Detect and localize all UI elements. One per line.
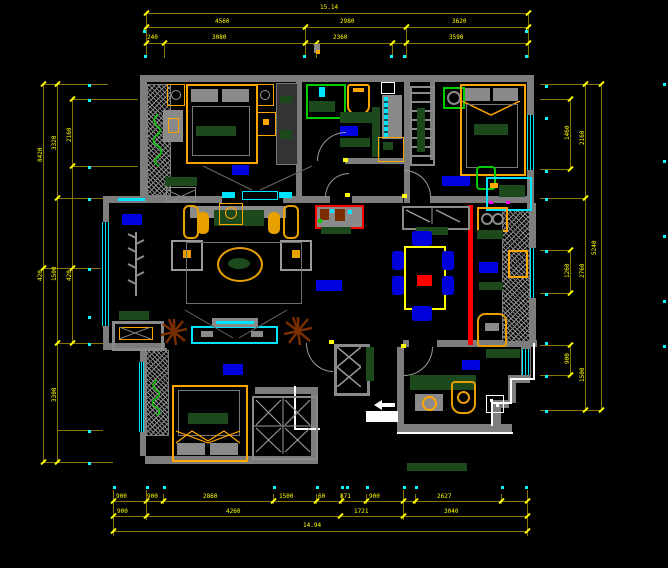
dining-chair bbox=[442, 276, 454, 295]
room-label-living bbox=[316, 280, 342, 291]
axis-dot bbox=[88, 198, 91, 201]
dim-text: 2360 bbox=[333, 35, 347, 41]
wall-top bbox=[140, 75, 533, 82]
cabinet-ornament bbox=[335, 209, 345, 221]
coat-tree-icon bbox=[124, 230, 148, 298]
dim-tick bbox=[567, 166, 573, 172]
shaft-x bbox=[337, 347, 361, 387]
wardrobe-x-panels bbox=[254, 398, 312, 454]
dim-text: 2160 bbox=[67, 128, 73, 142]
dim-text-total-bottom: 14.94 bbox=[303, 523, 321, 529]
burner bbox=[492, 213, 504, 225]
kitchen-counter-green bbox=[477, 230, 503, 239]
room-label-bedroom1 bbox=[232, 165, 249, 175]
mirror bbox=[384, 97, 388, 137]
dim-text: 420 bbox=[67, 270, 73, 281]
stool-seat bbox=[485, 323, 499, 331]
axis-dot bbox=[525, 55, 528, 58]
axis-dot bbox=[346, 486, 349, 489]
sliding-door-bedroom1 bbox=[242, 191, 278, 200]
dim-tick bbox=[598, 407, 604, 413]
dim-tick bbox=[567, 372, 573, 378]
desk-item bbox=[490, 183, 498, 188]
door-hinge bbox=[402, 194, 407, 198]
axis-dot bbox=[88, 268, 91, 271]
room-label-bath2 bbox=[462, 360, 480, 370]
dim-text: 900 bbox=[369, 494, 380, 500]
section-marker-accent bbox=[316, 50, 320, 54]
pillow bbox=[465, 88, 490, 101]
axis-dot bbox=[525, 486, 528, 489]
desk-bedroom2 bbox=[486, 177, 532, 211]
closet-boxes bbox=[417, 108, 425, 152]
bath1-shelf bbox=[340, 112, 372, 123]
axis-dot bbox=[545, 293, 548, 296]
axis-dot bbox=[88, 316, 91, 319]
plant-squiggle-icon bbox=[148, 378, 166, 416]
dresser bbox=[163, 110, 183, 142]
room-label-bedroom3 bbox=[223, 364, 243, 375]
axis-dot bbox=[163, 486, 166, 489]
dim-line bbox=[146, 13, 528, 14]
washing-machine bbox=[486, 395, 504, 413]
axis-dot bbox=[415, 486, 418, 489]
dim-ext bbox=[540, 84, 602, 85]
wardrobe-bedroom1 bbox=[276, 83, 298, 165]
washer-knob bbox=[490, 399, 493, 402]
dim-ext bbox=[72, 166, 138, 167]
door-hinge bbox=[343, 158, 348, 162]
dim-text: 3040 bbox=[444, 509, 458, 515]
dim-line bbox=[146, 43, 528, 44]
dim-text: 900 bbox=[565, 353, 571, 364]
dim-text: 60 bbox=[318, 494, 325, 500]
cabinet-ornament-cyan bbox=[348, 210, 352, 214]
dim-text: 2980 bbox=[340, 19, 354, 25]
dim-line bbox=[113, 501, 527, 502]
bath1-cabinet bbox=[378, 137, 404, 162]
dim-text: 900 bbox=[116, 494, 127, 500]
tv-cabinet-bedroom1 bbox=[165, 177, 197, 186]
nightstand bbox=[256, 84, 274, 106]
wall-bedroom3-topright bbox=[255, 387, 318, 394]
hall-shelf bbox=[321, 227, 351, 234]
cabinet-item bbox=[383, 142, 393, 150]
dim-ext bbox=[57, 430, 103, 431]
sofa-scroll-ornament bbox=[268, 212, 280, 234]
axis-dot bbox=[663, 83, 666, 86]
bed-bedroom1 bbox=[186, 84, 258, 164]
dim-ext bbox=[164, 43, 165, 58]
basin bbox=[422, 396, 437, 411]
axis-dot bbox=[144, 55, 147, 58]
desk-item-magenta bbox=[506, 201, 510, 204]
dim-text: 2760 bbox=[580, 264, 586, 278]
washer-knob bbox=[496, 404, 499, 407]
axis-dot bbox=[273, 486, 276, 489]
dim-text: 3300 bbox=[52, 388, 58, 402]
wall-bath2-bottom bbox=[397, 424, 512, 432]
axis-dot bbox=[146, 486, 149, 489]
wall-left-upper bbox=[140, 75, 147, 199]
plant-burst-icon bbox=[160, 318, 188, 346]
dim-text: 2860 bbox=[203, 494, 217, 500]
dining-chair bbox=[392, 276, 404, 295]
fan-blade bbox=[447, 91, 461, 105]
dim-line bbox=[601, 84, 602, 410]
lamp-icon bbox=[260, 90, 270, 100]
tv-sightlines-living bbox=[183, 308, 289, 340]
dim-ext bbox=[528, 13, 529, 58]
gas-stove bbox=[477, 207, 508, 232]
dim-text: 8420 bbox=[38, 148, 44, 162]
blanket-strip bbox=[196, 126, 236, 136]
pillow bbox=[191, 89, 218, 102]
blanket-strip bbox=[188, 413, 228, 424]
dim-line bbox=[113, 531, 527, 532]
tv-sightlines bbox=[200, 164, 316, 194]
axis-dot bbox=[88, 462, 91, 465]
dining-chair bbox=[442, 251, 454, 270]
dim-line bbox=[113, 516, 527, 517]
dim-text: 420 bbox=[38, 270, 44, 281]
wardrobe-item bbox=[280, 96, 292, 103]
paper-holder bbox=[381, 82, 395, 94]
entry-outline bbox=[397, 432, 513, 434]
entry-label-block bbox=[366, 411, 398, 422]
sofa-arm-right bbox=[283, 205, 299, 239]
axis-dot bbox=[545, 85, 548, 88]
dim-text: 3320 bbox=[52, 136, 58, 150]
axis-dot bbox=[316, 486, 319, 489]
table-lamp bbox=[225, 207, 237, 219]
window-balcony-top bbox=[118, 198, 145, 201]
stool-seat bbox=[263, 119, 269, 125]
shower-head-icon bbox=[319, 87, 325, 97]
balcony-table bbox=[112, 321, 164, 351]
kitchen-sink bbox=[508, 250, 528, 278]
axis-dot bbox=[663, 345, 666, 348]
dim-text: 871 bbox=[340, 494, 351, 500]
table-centerpiece bbox=[417, 275, 432, 286]
bed-bedroom2 bbox=[460, 84, 526, 176]
door-arc-bedroom2 bbox=[404, 170, 431, 197]
pillow bbox=[177, 443, 205, 455]
dim-ext bbox=[72, 99, 138, 100]
wall-spine bbox=[352, 196, 403, 203]
bench-x bbox=[167, 190, 195, 203]
room-label-bedroom2 bbox=[442, 176, 470, 186]
table-plant bbox=[228, 258, 250, 269]
cad-floor-plan-canvas[interactable]: 15.14 4560 2980 3620 240 3080 2360 3590 … bbox=[0, 0, 668, 568]
dim-text: 1260 bbox=[565, 264, 571, 278]
window-balcony bbox=[102, 222, 111, 326]
window-bath2 bbox=[522, 349, 530, 375]
axis-dot bbox=[88, 99, 91, 102]
axis-dot bbox=[341, 486, 344, 489]
door-hinge bbox=[401, 344, 406, 348]
axis-dot bbox=[545, 375, 548, 378]
axis-dot bbox=[545, 410, 548, 413]
mattress bbox=[466, 104, 518, 168]
entry-arrow-icon bbox=[374, 399, 396, 411]
shower-bench bbox=[309, 101, 335, 112]
vanity-bath1 bbox=[382, 95, 402, 139]
dim-text-total-top: 15.14 bbox=[320, 5, 338, 11]
dim-text: 4260 bbox=[226, 509, 240, 515]
wall-bath2-left bbox=[397, 347, 404, 431]
axis-dot bbox=[303, 55, 306, 58]
door-hinge bbox=[329, 340, 334, 344]
dresser-stool bbox=[168, 118, 179, 133]
bath2-shelf bbox=[486, 349, 520, 358]
sideboard-panels bbox=[404, 208, 464, 224]
room-label-balcony bbox=[122, 214, 142, 225]
axis-dot bbox=[545, 117, 548, 120]
pillow bbox=[210, 443, 238, 455]
dining-chair bbox=[412, 231, 432, 246]
desk-item-magenta bbox=[489, 201, 493, 204]
nightstand bbox=[167, 84, 185, 106]
lamp-icon bbox=[171, 90, 181, 100]
dim-ext bbox=[540, 410, 602, 411]
axis-dot bbox=[143, 30, 146, 33]
vanity-bath2 bbox=[415, 394, 443, 411]
dim-text: 900 bbox=[117, 509, 128, 515]
wardrobe-item bbox=[280, 130, 292, 139]
entry-outline bbox=[533, 343, 535, 380]
toilet-bath1 bbox=[347, 84, 370, 115]
bed-bedroom3 bbox=[172, 385, 248, 462]
dim-text: 1721 bbox=[354, 509, 368, 515]
blanket-strip bbox=[474, 124, 508, 135]
axis-dot bbox=[403, 55, 406, 58]
axis-dot bbox=[663, 160, 666, 163]
dim-text: 240 bbox=[147, 35, 158, 41]
toilet-bath2 bbox=[451, 381, 476, 414]
dim-text: 3590 bbox=[449, 35, 463, 41]
sofa-side-table bbox=[219, 203, 243, 225]
dim-text: 900 bbox=[147, 494, 158, 500]
axis-dot bbox=[403, 486, 406, 489]
dim-ext bbox=[57, 343, 103, 344]
axis-dot bbox=[366, 486, 369, 489]
dim-ext bbox=[43, 84, 108, 85]
axis-dot bbox=[545, 170, 548, 173]
entry-outline bbox=[510, 378, 535, 380]
dim-text: 1500 bbox=[52, 267, 58, 281]
axis-dot bbox=[88, 84, 91, 87]
room-label-kitchen bbox=[479, 262, 498, 273]
door-arc-bath1 bbox=[325, 173, 349, 197]
axis-dot bbox=[545, 198, 548, 201]
door-arc-bedroom3 bbox=[306, 343, 333, 372]
entry-outline bbox=[510, 378, 512, 404]
porch-planter bbox=[407, 463, 467, 471]
axis-dot bbox=[88, 166, 91, 169]
axis-dot bbox=[390, 55, 393, 58]
axis-dot bbox=[663, 235, 666, 238]
dim-text: 5240 bbox=[592, 241, 598, 255]
door-arc-bath2 bbox=[404, 347, 433, 376]
axis-dot bbox=[113, 486, 116, 489]
axis-dot bbox=[88, 430, 91, 433]
dim-text: 1500 bbox=[580, 368, 586, 382]
dim-ext bbox=[57, 198, 103, 199]
sofa-scroll-ornament bbox=[197, 212, 209, 234]
kitchen-counter-green bbox=[479, 282, 503, 290]
balcony-mat bbox=[119, 311, 149, 320]
sliding-door-panel bbox=[222, 192, 235, 198]
entry-cabinet bbox=[315, 205, 364, 229]
dining-chair bbox=[392, 251, 404, 270]
kitchen-stool bbox=[477, 313, 507, 347]
pillow bbox=[493, 88, 518, 101]
window-right-bedroom2 bbox=[527, 115, 534, 170]
wall-right-upper bbox=[527, 75, 534, 115]
door-arc-shower bbox=[317, 132, 346, 161]
toilet-tank bbox=[353, 88, 364, 92]
hall-cabinet-shaft bbox=[334, 344, 370, 396]
cabinet-ornament-green bbox=[318, 219, 322, 223]
axis-dot bbox=[545, 250, 548, 253]
toilet-bowl bbox=[457, 391, 470, 404]
bench bbox=[166, 187, 196, 202]
axis-dot bbox=[88, 343, 91, 346]
dim-line bbox=[146, 27, 528, 28]
dim-text: 1500 bbox=[279, 494, 293, 500]
dressing-stool bbox=[256, 112, 276, 136]
window-bedroom3 bbox=[139, 362, 144, 432]
shaft-panel bbox=[366, 347, 374, 381]
wardrobe-bedroom3 bbox=[252, 396, 318, 460]
dim-text: 3620 bbox=[452, 19, 466, 25]
dim-tick bbox=[567, 290, 573, 296]
axis-dot bbox=[545, 342, 548, 345]
cabinet-ornament-cyan bbox=[330, 209, 334, 213]
table-x bbox=[119, 327, 151, 339]
dim-text: 4560 bbox=[215, 19, 229, 25]
axis-dot bbox=[663, 300, 666, 303]
dim-text: 2627 bbox=[437, 494, 451, 500]
axis-dot bbox=[525, 30, 528, 33]
dining-chair bbox=[412, 306, 432, 321]
plant-burst-icon bbox=[283, 316, 313, 346]
desk-blotter bbox=[499, 185, 525, 197]
dim-text: 3080 bbox=[212, 35, 226, 41]
sliding-door-panel bbox=[279, 192, 292, 198]
pillow bbox=[222, 89, 249, 102]
dim-text: 2160 bbox=[580, 131, 586, 145]
dim-text: 1460 bbox=[565, 126, 571, 140]
axis-dot bbox=[501, 486, 504, 489]
coffee-table bbox=[217, 247, 263, 282]
